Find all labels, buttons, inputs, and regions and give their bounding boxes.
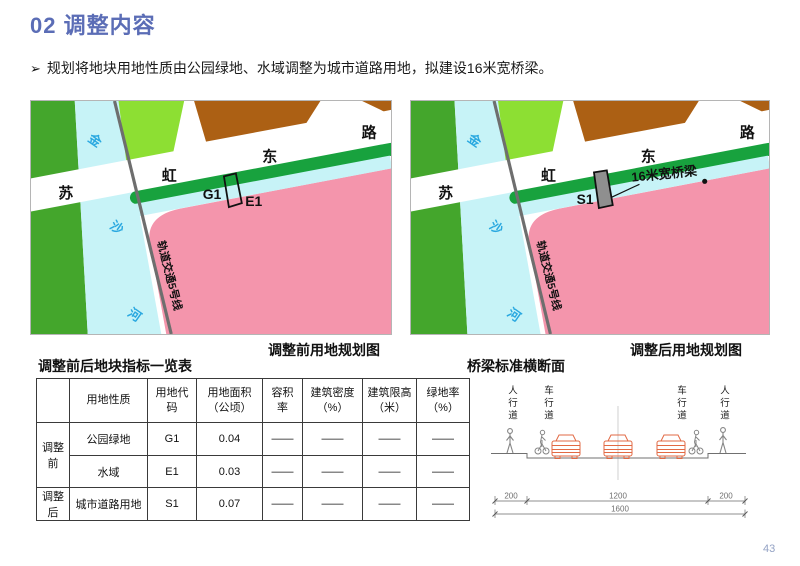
cell-green-rate: —— [417,488,470,521]
header-density: 建筑密度 （%） [303,379,363,423]
caption-map-after: 调整后用地规划图 [630,340,742,360]
lane-label-sidewalk-left: 人行道 [504,385,518,423]
table-title: 调整前后地块指标一览表 [38,356,192,376]
header-code: 用地代 码 [148,379,197,423]
lane-label-carriageway-left: 车行道 [540,385,554,423]
map-after-svg: 轨道交通5号线 金 沙 河 苏 虹 东 路 16米宽桥梁 S1 [411,101,769,334]
cell-code: G1 [148,423,197,456]
slide: 02 调整内容 ➢规划将地块用地性质由公园绿地、水域调整为城市道路用地，拟建设1… [0,0,800,566]
header-far: 容积 率 [263,379,303,423]
lane-label-carriageway-right: 车行道 [673,385,687,423]
cross-section-title: 桥梁标准横断面 [467,356,565,376]
bullet-arrow-icon: ➢ [30,61,41,76]
road-char-lu: 路 [362,124,377,142]
bullet-text: 规划将地块用地性质由公园绿地、水域调整为城市道路用地，拟建设16米宽桥梁。 [47,60,553,76]
cross-section-svg: 200 1200 200 1600 [485,380,785,520]
cell-density: —— [303,488,363,521]
pedestrian-icon [507,429,514,453]
cell-area: 0.03 [197,456,263,488]
dim-middle: 1200 [609,492,627,501]
header-use: 用地性质 [70,379,148,423]
map-before-svg: 轨道交通5号线 金 沙 河 苏 虹 东 路 G1 E1 [31,101,391,334]
cell-far: —— [263,423,303,456]
car-icon [552,435,580,459]
cell-far: —— [263,488,303,521]
table-row: 调整后 城市道路用地 S1 0.07 —— —— —— —— [37,488,470,521]
cross-section-diagram: 人行道 车行道 车行道 人行道 [485,380,785,520]
dim-left: 200 [504,492,518,501]
cell-code: S1 [148,488,197,521]
map-before: 轨道交通5号线 金 沙 河 苏 虹 东 路 G1 E1 [30,100,392,335]
cell-area: 0.07 [197,488,263,521]
table-row: 水域 E1 0.03 —— —— —— —— [37,456,470,488]
table-header-row: 用地性质 用地代 码 用地面积 （公顷） 容积 率 建筑密度 （%） 建筑限高 … [37,379,470,423]
dim-right: 200 [719,492,733,501]
group-label-after: 调整后 [37,488,70,521]
page-title: 02 调整内容 [30,8,156,40]
road-char-su: 苏 [438,184,453,202]
cell-area: 0.04 [197,423,263,456]
annotation-dot [702,179,707,184]
cell-density: —— [303,456,363,488]
bullet-line: ➢规划将地块用地性质由公园绿地、水域调整为城市道路用地，拟建设16米宽桥梁。 [30,58,770,78]
header-height-limit: 建筑限高 （米） [363,379,417,423]
table-row: 调整前 公园绿地 G1 0.04 —— —— —— —— [37,423,470,456]
header-area: 用地面积 （公顷） [197,379,263,423]
road-char-hong: 虹 [162,167,177,184]
cell-density: —— [303,423,363,456]
car-icon [657,435,685,459]
map-after: 轨道交通5号线 金 沙 河 苏 虹 东 路 16米宽桥梁 S1 [410,100,770,335]
page-number: 43 [763,543,775,555]
cell-height-limit: —— [363,488,417,521]
plot-label-g1: G1 [203,186,222,202]
plot-label-s1: S1 [577,191,594,207]
cell-use: 水域 [70,456,148,488]
header-empty [37,379,70,423]
cell-green-rate: —— [417,423,470,456]
road-char-hong: 虹 [541,167,556,184]
indicator-table: 用地性质 用地代 码 用地面积 （公顷） 容积 率 建筑密度 （%） 建筑限高 … [36,378,470,521]
cell-use: 公园绿地 [70,423,148,456]
plot-label-e1: E1 [245,193,262,209]
caption-map-before: 调整前用地规划图 [268,340,380,360]
cell-green-rate: —— [417,456,470,488]
dim-total: 1600 [611,505,629,514]
cyclist-icon [535,430,549,454]
cell-use: 城市道路用地 [70,488,148,521]
cell-height-limit: —— [363,423,417,456]
lane-label-sidewalk-right: 人行道 [716,385,730,423]
road-char-dong: 东 [641,147,656,165]
cell-far: —— [263,456,303,488]
cell-height-limit: —— [363,456,417,488]
cyclist-icon [689,430,703,454]
road-char-dong: 东 [262,148,277,166]
group-label-before: 调整前 [37,423,70,488]
header-green-rate: 绿地率 （%） [417,379,470,423]
road-char-su: 苏 [58,184,73,202]
cell-code: E1 [148,456,197,488]
pedestrian-icon [720,428,727,453]
road-char-lu: 路 [740,124,755,142]
